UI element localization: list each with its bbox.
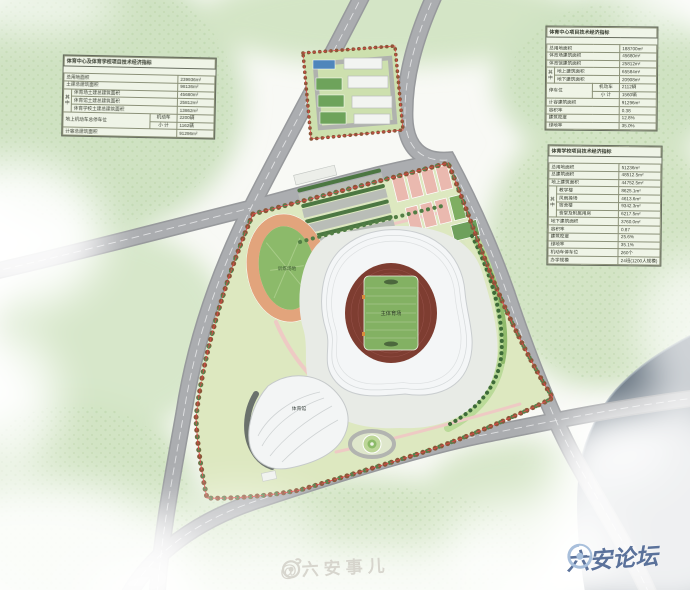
right-indicator-table-2: 体育学校项目技术经济指标 总用地面积 51236m² 总建筑面积 48512.5…: [547, 145, 661, 265]
table-group-label: 地上机动车总停车位: [63, 112, 150, 129]
table-cell-label: 计容总建筑面积: [63, 127, 177, 137]
table-group-label: 停车位: [546, 83, 592, 99]
table-cell-label: 小 计: [592, 91, 619, 99]
table-cell-value: 24班(1200人规模): [618, 257, 660, 265]
right-indicator-table-1: 体育中心项目技术经济指标 总用地面积 188700m² 体育场建筑面积 4568…: [546, 27, 658, 131]
table-cell-value: 91296m²: [177, 130, 214, 139]
forum-logo-icon: [565, 541, 595, 571]
table-group-label: 其中: [546, 67, 554, 83]
weibo-logo-icon: [279, 556, 304, 581]
forum-watermark: 六安论坛: [565, 537, 659, 577]
south-entrance-plaza: [350, 431, 394, 457]
table-cell-value: 35.0%: [619, 122, 656, 130]
site-plan-image: 训练场地 主体育场: [0, 0, 690, 590]
table-cell-label: 绿地率: [546, 122, 619, 130]
table-cell-label: 办学规模: [548, 256, 618, 264]
training-field-label: 训练场地: [278, 265, 297, 272]
left-indicator-table: 体育中心及体育学校项目技术经济指标 总用地面积 239936m² 土建总建筑面积…: [62, 55, 216, 138]
table-cell-label: 机动车: [592, 83, 619, 91]
gymnasium-label: 体育馆: [292, 405, 307, 412]
sports-school-parcel: [303, 46, 403, 139]
stadium-label: 主体育场: [381, 309, 402, 317]
